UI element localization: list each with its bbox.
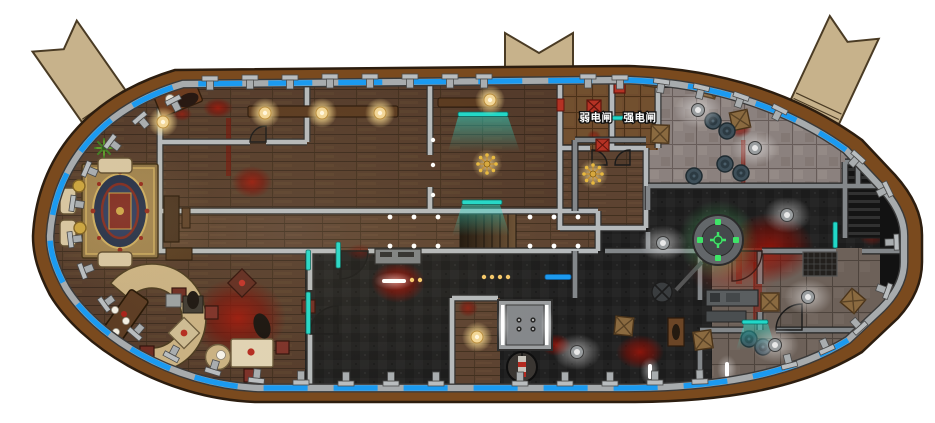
reactor (678, 200, 758, 280)
weak-switch-label: 弱电闸 (580, 111, 613, 124)
strong-switch-label: 强电闸 (624, 111, 657, 124)
ship-map: 弱电闸 强电闸 (0, 0, 935, 423)
ship-map-screenshot: 弱电闸 强电闸 (0, 0, 935, 423)
